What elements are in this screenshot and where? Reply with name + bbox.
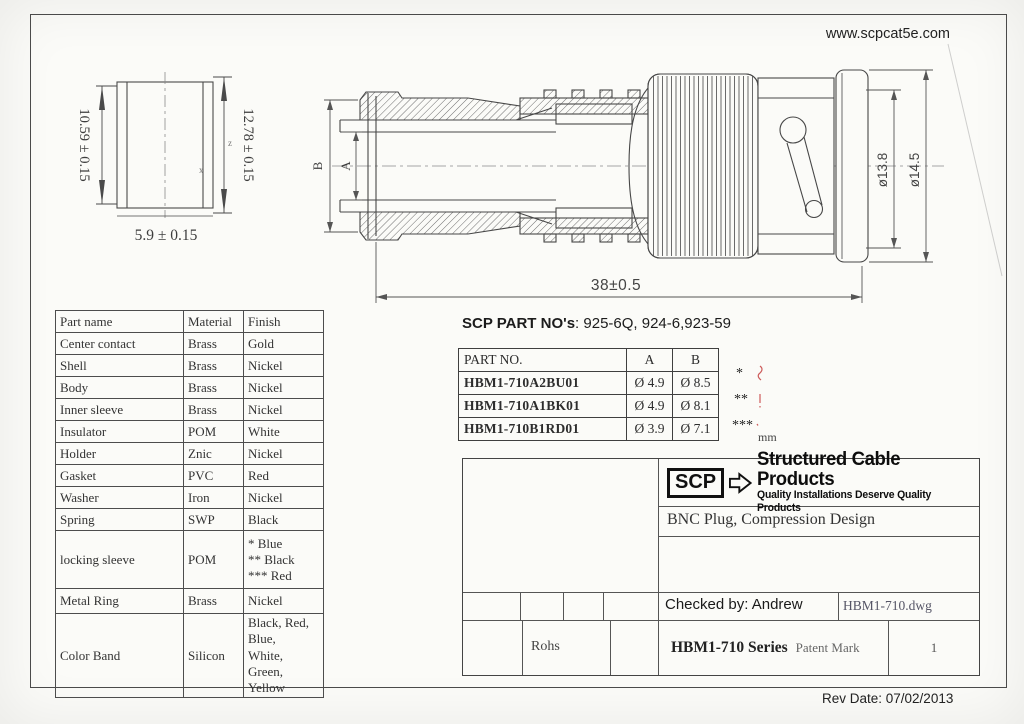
scp-part-label: SCP PART NO's [462,315,575,332]
unit-label: mm [758,430,777,445]
connector-section [332,44,1002,276]
col-finish: Finish [244,311,324,333]
table-row: Shell Brass Nickel [56,355,324,377]
label-a: A [338,161,353,171]
dim-10-59: 10.59 ± 0.15 [76,108,92,181]
drawing-file-name: HBM1-710.dwg [839,593,979,621]
part-finish: * Blue ** Black *** Red [244,531,324,589]
part-finish: Nickel [244,399,324,421]
product-title: BNC Plug, Compression Design [659,507,979,537]
title-block-small-cell [463,593,521,621]
sheet-number: 1 [889,621,979,675]
part-name: Insulator [56,421,184,443]
part-material: Brass [184,355,244,377]
part-name: Color Band [56,614,184,698]
col-part-name: Part name [56,311,184,333]
footnote-marker-1: * [736,366,743,382]
part-finish: Nickel [244,589,324,614]
rohs-label: Rohs [523,621,611,675]
table-row: Body Brass Nickel [56,377,324,399]
title-block-small-cell [521,593,564,621]
dim-5-9: 5.9 ± 0.15 [135,227,198,244]
table-row: HBM1-710A2BU01 Ø 4.9 Ø 8.5 [459,372,719,395]
part-finish: Black [244,509,324,531]
scp-part-values: : 925-6Q, 924-6,923-59 [575,315,731,332]
dim-dia-13-8: ø13.8 [875,153,890,188]
part-material: POM [184,421,244,443]
dim-12-78: 12.78 ± 0.15 [240,108,256,181]
series-cell: HBM1-710 Series Patent Mark [659,621,889,675]
part-finish: Gold [244,333,324,355]
part-finish: White [244,421,324,443]
footnote-marker-3: *** [732,418,753,434]
col-part-no: PART NO. [459,349,627,372]
mark-x: x [199,165,204,175]
table-header-row: PART NO. A B [459,349,719,372]
part-number: HBM1-710B1RD01 [459,418,627,441]
table-header-row: Part name Material Finish [56,311,324,333]
table-row: HBM1-710B1RD01 Ø 3.9 Ø 7.1 [459,418,719,441]
table-row: HBM1-710A1BK01 Ø 4.9 Ø 8.1 [459,395,719,418]
part-material: SWP [184,509,244,531]
part-material: Brass [184,333,244,355]
part-name: Washer [56,487,184,509]
dim-a: Ø 3.9 [627,418,673,441]
col-b: B [673,349,719,372]
parts-material-table: Part name Material Finish Center contact… [55,310,324,698]
table-row: Holder Znic Nickel [56,443,324,465]
title-block-small-cell [604,593,659,621]
title-block-small-cell [564,593,604,621]
part-finish: Nickel [244,355,324,377]
part-name: Inner sleeve [56,399,184,421]
table-row: Washer Iron Nickel [56,487,324,509]
part-finish: Red [244,465,324,487]
table-row: Spring SWP Black [56,509,324,531]
table-row: Gasket PVC Red [56,465,324,487]
part-material: Silicon [184,614,244,698]
dim-dia-14-5: ø14.5 [907,153,922,188]
title-block-small-cell [463,621,523,675]
table-row: Color Band Silicon Black, Red, Blue, Whi… [56,614,324,698]
part-material: POM [184,531,244,589]
part-name: Body [56,377,184,399]
part-finish: Nickel [244,487,324,509]
mark-z: z [228,138,232,148]
red-annotation-marks [757,366,762,426]
part-name: Spring [56,509,184,531]
table-row: locking sleeve POM * Blue ** Black *** R… [56,531,324,589]
part-name: Center contact [56,333,184,355]
logo-cell: SCP Structured Cable Products Quality In… [659,459,979,507]
dim-b: Ø 7.1 [673,418,719,441]
part-material: PVC [184,465,244,487]
label-b: B [310,161,325,170]
part-name: Holder [56,443,184,465]
part-material: Brass [184,377,244,399]
part-number: HBM1-710A2BU01 [459,372,627,395]
series-name: HBM1-710 Series [671,639,788,657]
part-number-table: PART NO. A B HBM1-710A2BU01 Ø 4.9 Ø 8.5 … [458,348,719,441]
part-material: Znic [184,443,244,465]
part-finish: Nickel [244,377,324,399]
patent-mark-label: Patent Mark [796,640,860,656]
title-block-empty-cell [659,537,979,593]
title-block-empty-cell [463,459,659,593]
title-block-small-cell [611,621,659,675]
logo-arrow-icon [729,472,752,494]
part-name: Shell [56,355,184,377]
part-finish: Black, Red, Blue, White, Green, Yellow [244,614,324,698]
dim-a: Ø 4.9 [627,372,673,395]
table-row: Insulator POM White [56,421,324,443]
part-material: Brass [184,589,244,614]
dim-b: Ø 8.1 [673,395,719,418]
part-name: locking sleeve [56,531,184,589]
part-number: HBM1-710A1BK01 [459,395,627,418]
part-name: Metal Ring [56,589,184,614]
scp-logo: SCP [667,468,724,498]
col-material: Material [184,311,244,333]
scp-part-numbers-heading: SCP PART NO's: 925-6Q, 924-6,923-59 [462,315,731,333]
table-row: Metal Ring Brass Nickel [56,589,324,614]
table-row: Inner sleeve Brass Nickel [56,399,324,421]
part-name: Gasket [56,465,184,487]
dim-b: Ø 8.5 [673,372,719,395]
checked-by: Checked by: Andrew [659,593,839,621]
dim-a: Ø 4.9 [627,395,673,418]
part-finish: Nickel [244,443,324,465]
table-row: Center contact Brass Gold [56,333,324,355]
part-material: Iron [184,487,244,509]
col-a: A [627,349,673,372]
dim-length: 38±0.5 [591,277,641,294]
brand-name: Structured Cable Products [757,450,968,489]
title-block: SCP Structured Cable Products Quality In… [462,458,980,676]
footnote-marker-2: ** [734,392,748,408]
datasheet-page: www.scpcat5e.com Rev Date: 07/02/2013 [0,0,1024,724]
end-view [96,72,232,218]
part-material: Brass [184,399,244,421]
